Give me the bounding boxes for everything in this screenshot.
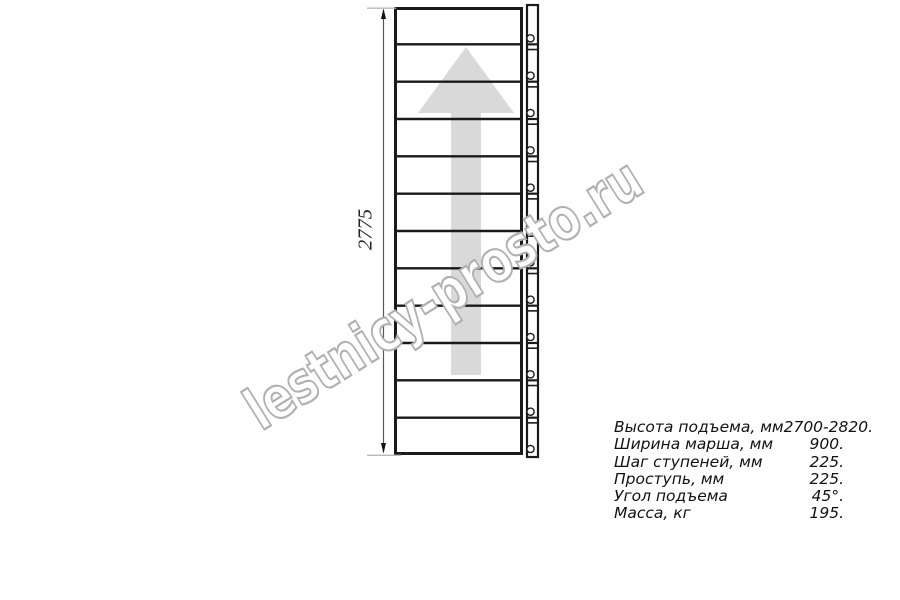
fastener-circle — [527, 72, 534, 79]
spec-label: Масса, кг — [614, 505, 691, 522]
fastener-circle — [527, 333, 534, 340]
spec-row: Угол подъема 45°. — [614, 488, 844, 505]
page-canvas: 2775 lestnicy-prosto.ru Высота подъема, … — [0, 0, 900, 600]
spec-value: 225. — [809, 471, 844, 488]
specs-table: Высота подъема, мм 2700-2820. Ширина мар… — [614, 419, 844, 523]
spec-value: 195. — [809, 505, 844, 522]
spec-row: Масса, кг 195. — [614, 505, 844, 522]
spec-value: 2700-2820. — [784, 419, 873, 436]
spec-value: 45°. — [812, 488, 844, 505]
spec-label: Проступь, мм — [614, 471, 724, 488]
spec-value: 900. — [809, 436, 844, 453]
spec-value: 225. — [809, 454, 844, 471]
spec-row: Шаг ступеней, мм 225. — [614, 454, 844, 471]
spec-row: Проступь, мм 225. — [614, 471, 844, 488]
height-dimension-label: 2775 — [355, 209, 377, 250]
site-watermark: lestnicy-prosto.ru — [232, 145, 654, 444]
spec-label: Шаг ступеней, мм — [614, 454, 763, 471]
fastener-circle — [527, 371, 534, 378]
spec-label: Высота подъема, мм — [614, 419, 784, 436]
fastener-circle — [527, 184, 534, 191]
fastener-circle — [527, 296, 534, 303]
fastener-circle — [527, 445, 534, 452]
fastener-circle — [527, 109, 534, 116]
fastener-circle — [527, 35, 534, 42]
spec-label: Угол подъема — [614, 488, 728, 505]
dimension-arrowhead-top-icon — [381, 9, 386, 20]
fastener-circle — [527, 147, 534, 154]
spec-label: Ширина марша, мм — [614, 436, 773, 453]
fastener-circle — [527, 408, 534, 415]
spec-row: Ширина марша, мм 900. — [614, 436, 844, 453]
dimension-arrowhead-bottom-icon — [381, 443, 386, 454]
spec-row: Высота подъема, мм 2700-2820. — [614, 419, 844, 436]
